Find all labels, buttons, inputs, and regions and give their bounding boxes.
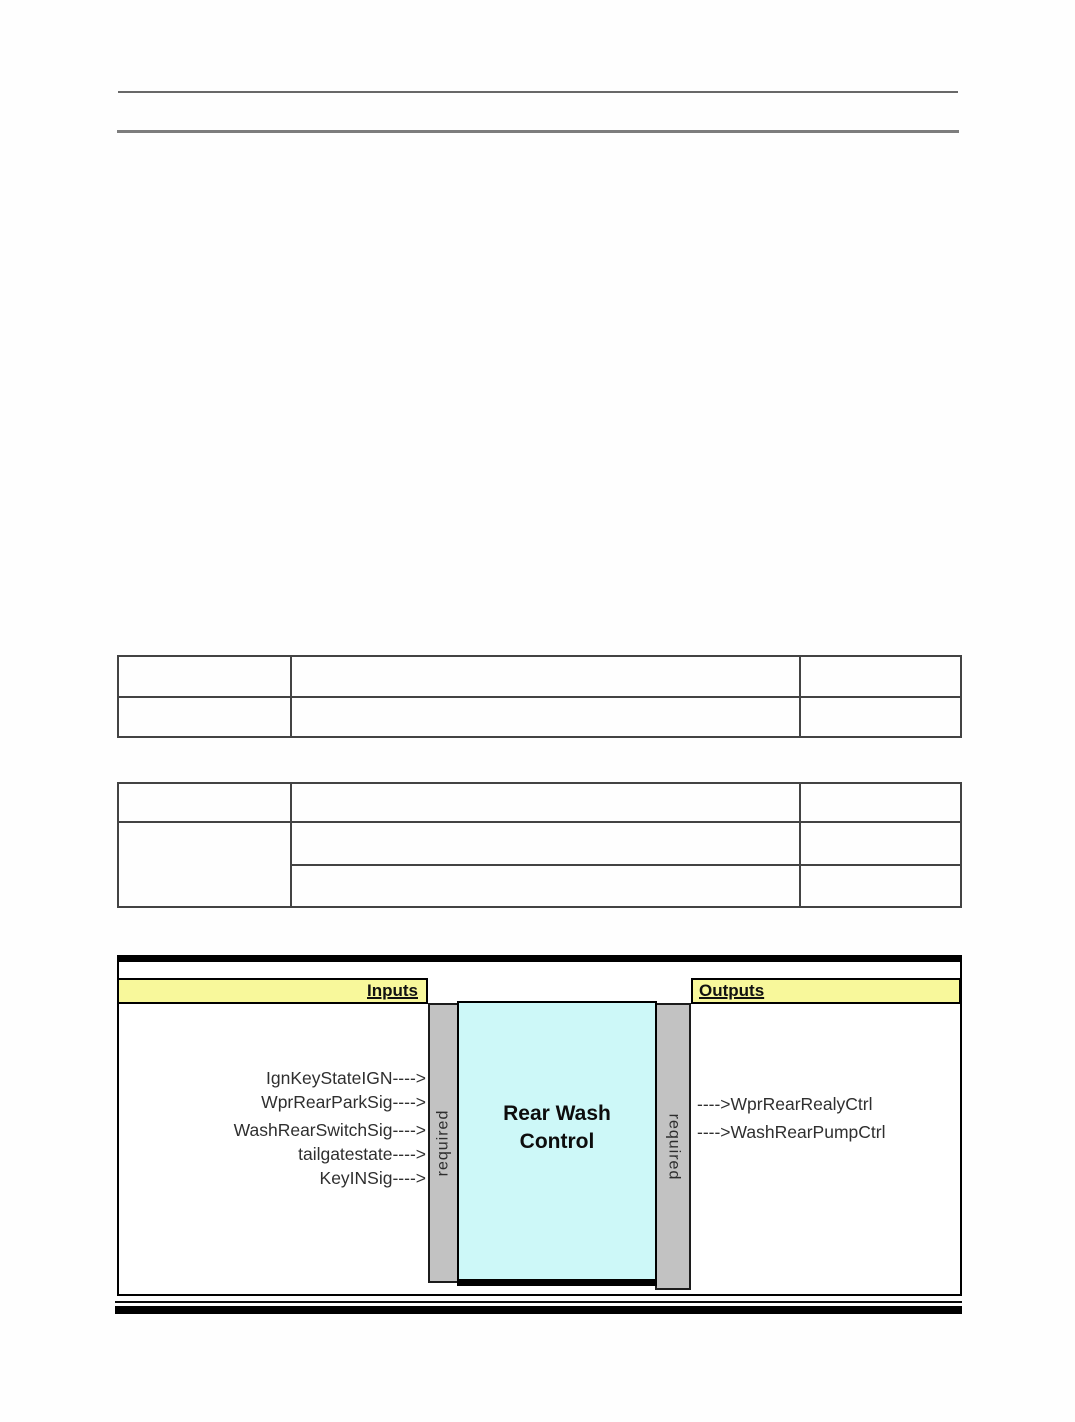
required-bar-left-label: required	[435, 1110, 453, 1177]
outputs-banner-label: Outputs	[699, 981, 764, 1001]
table-cell	[800, 697, 961, 737]
inputs-banner-label: Inputs	[367, 981, 418, 1001]
outputs-banner: Outputs	[691, 978, 961, 1004]
output-signal: ---->WashRearPumpCtrl	[697, 1118, 977, 1146]
output-signal-list: ---->WprRearRealyCtrl ---->WashRearPumpC…	[697, 1090, 977, 1146]
header-rule-thick	[117, 130, 959, 133]
block-title-line2: Control	[457, 1128, 657, 1156]
input-signal: KeyINSig---->	[140, 1166, 426, 1190]
table-cell-merged	[118, 822, 291, 907]
input-signal: WashRearSwitchSig---->	[140, 1118, 426, 1142]
document-page: Inputs Outputs required Rear Wash Contro…	[0, 0, 1075, 1422]
table-cell	[291, 783, 800, 822]
table-cell	[800, 656, 961, 697]
footer-rule-thick	[115, 1306, 962, 1314]
block-title-line1: Rear Wash	[457, 1100, 657, 1128]
input-signal: WprRearParkSig---->	[140, 1090, 426, 1114]
spec-table-2	[117, 782, 962, 908]
inputs-banner: Inputs	[117, 978, 428, 1004]
input-signal: tailgatestate---->	[140, 1142, 426, 1166]
table-cell	[800, 865, 961, 907]
input-signal-list: IgnKeyStateIGN----> WprRearParkSig----> …	[140, 1066, 426, 1190]
table-cell	[291, 697, 800, 737]
table-cell	[291, 656, 800, 697]
footer-rule-thin	[115, 1301, 962, 1303]
table-cell	[291, 865, 800, 907]
table-cell	[800, 783, 961, 822]
required-bar-right: required	[655, 1003, 691, 1290]
table-cell	[291, 822, 800, 865]
input-signal: IgnKeyStateIGN---->	[140, 1066, 426, 1090]
spec-table-1	[117, 655, 962, 738]
table-cell	[118, 697, 291, 737]
required-bar-left: required	[428, 1003, 459, 1283]
table-cell	[118, 783, 291, 822]
rear-wash-control-title: Rear Wash Control	[457, 1100, 657, 1156]
header-rule-thin	[118, 91, 958, 93]
table-cell	[118, 656, 291, 697]
table-cell	[800, 822, 961, 865]
output-signal: ---->WprRearRealyCtrl	[697, 1090, 977, 1118]
required-bar-right-label: required	[664, 1113, 682, 1180]
